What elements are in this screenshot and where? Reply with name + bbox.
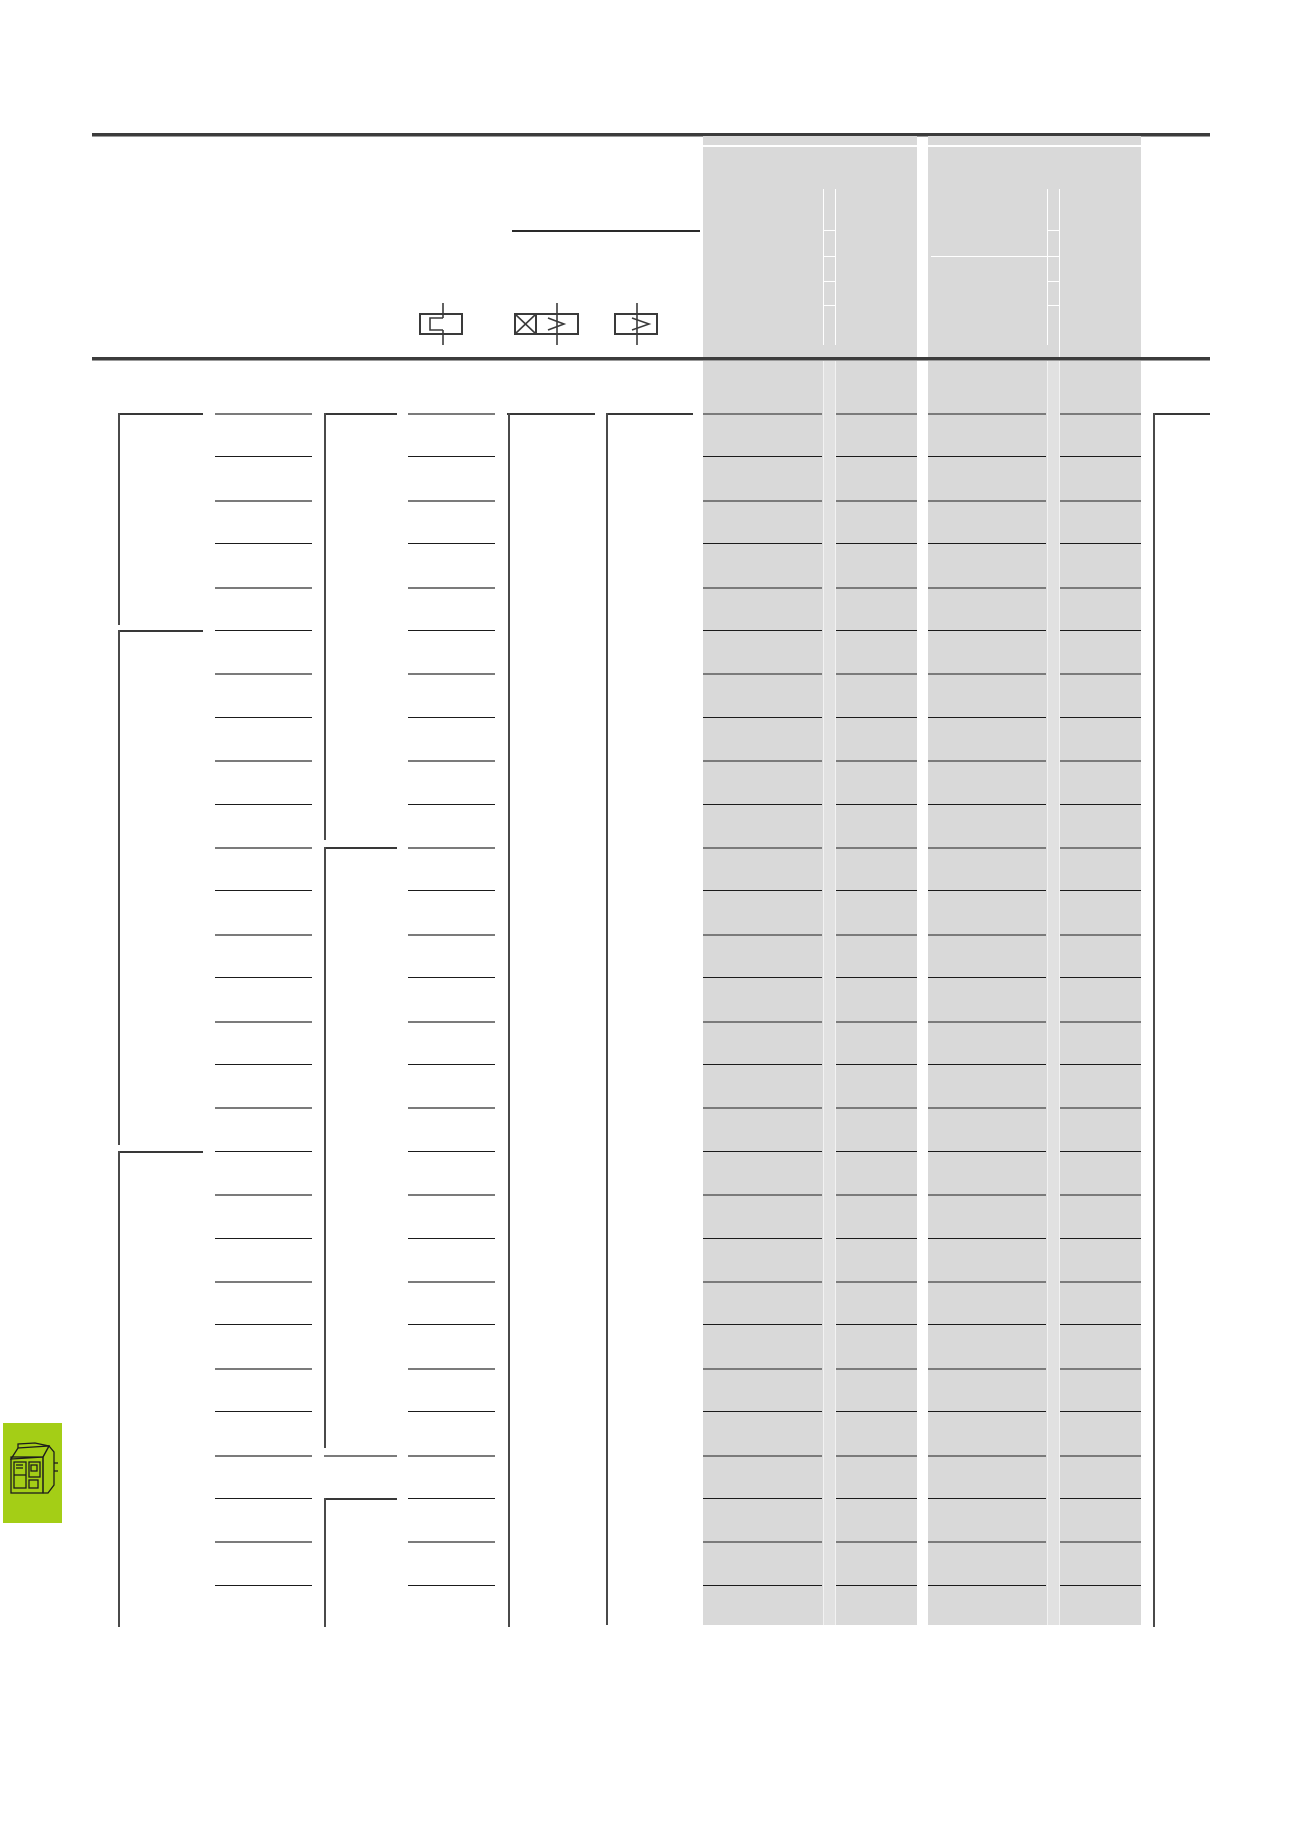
catalog-page: [0, 0, 1300, 1841]
body-band-1-divider-strip: [823, 361, 836, 1625]
header-subcolumn-divider: [1059, 189, 1060, 357]
row-line: [703, 500, 822, 502]
row-line: [703, 847, 822, 849]
header-underline: [512, 230, 700, 232]
row-line: [408, 760, 495, 762]
row-line: [1060, 413, 1141, 415]
column-rule: [118, 630, 120, 1145]
row-line: [928, 804, 1046, 805]
row-line: [1060, 1107, 1141, 1109]
row-line: [1060, 1541, 1141, 1543]
row-line: [836, 1541, 917, 1543]
header-tick: [1047, 230, 1060, 231]
row-line: [1060, 673, 1141, 675]
row-line: [408, 847, 495, 849]
row-line: [1060, 1498, 1141, 1499]
column-rule: [606, 413, 608, 1625]
row-line: [836, 500, 917, 502]
row-line: [703, 934, 822, 936]
header-gray-band-1: [703, 136, 917, 357]
row-line: [1060, 847, 1141, 849]
row-line: [836, 1064, 917, 1065]
row-line: [836, 1324, 917, 1325]
row-line: [408, 1455, 495, 1457]
column-rule: [1153, 413, 1155, 1627]
column-rule: [324, 413, 326, 840]
row-line: [408, 1107, 495, 1109]
row-line: [928, 847, 1046, 849]
cell-corner-line: [324, 1498, 397, 1500]
row-line: [408, 500, 495, 502]
row-line: [928, 934, 1046, 936]
row-line: [215, 934, 312, 936]
row-line: [408, 456, 495, 457]
row-line: [703, 413, 822, 415]
row-line: [703, 1238, 822, 1239]
row-line: [703, 456, 822, 457]
row-line: [928, 543, 1046, 544]
cell-corner-line: [118, 630, 203, 632]
header-tick: [823, 305, 836, 306]
row-line: [1060, 760, 1141, 762]
page-tab-badge: [3, 1423, 62, 1523]
header-tick: [823, 256, 836, 257]
row-line: [836, 890, 917, 891]
row-line: [703, 760, 822, 762]
row-line: [1060, 456, 1141, 457]
row-line: [408, 804, 495, 805]
row-line: [215, 1281, 312, 1283]
row-line: [408, 1498, 495, 1499]
column-rule: [508, 413, 510, 1627]
body-gray-band-1: [703, 361, 917, 1625]
header-tick: [1047, 281, 1060, 282]
row-line: [836, 630, 917, 631]
row-line: [408, 1238, 495, 1239]
row-line: [1060, 1021, 1141, 1023]
row-line: [215, 1064, 312, 1065]
row-line: [215, 977, 312, 978]
row-line: [836, 673, 917, 675]
row-line: [215, 1455, 312, 1457]
row-line: [928, 1194, 1046, 1196]
row-line: [928, 977, 1046, 978]
row-line: [928, 630, 1046, 631]
row-line: [928, 1107, 1046, 1109]
row-line: [215, 413, 312, 415]
row-line: [215, 456, 312, 457]
row-line: [836, 587, 917, 589]
circuit-breaker-product-icon: [3, 1423, 62, 1523]
row-line: [408, 1151, 495, 1152]
row-line: [928, 500, 1046, 502]
header-gray-band-2: [928, 136, 1141, 357]
row-line: [408, 1411, 495, 1412]
overcurrent-release-symbol-icon: [614, 303, 658, 345]
row-line: [928, 1411, 1046, 1412]
row-line: [215, 1541, 312, 1543]
row-line: [928, 1151, 1046, 1152]
row-line: [1060, 1281, 1141, 1283]
row-line: [836, 977, 917, 978]
row-line: [836, 847, 917, 849]
row-line: [408, 1585, 495, 1586]
row-line: [1060, 804, 1141, 805]
row-line: [703, 1368, 822, 1370]
cell-corner-line: [1153, 413, 1210, 415]
row-line: [1060, 934, 1141, 936]
row-line: [836, 1411, 917, 1412]
row-line: [324, 1455, 397, 1457]
row-line: [836, 1585, 917, 1586]
row-line: [215, 1411, 312, 1412]
header-tick: [823, 281, 836, 282]
row-line: [703, 673, 822, 675]
row-line: [215, 673, 312, 675]
cell-corner-line: [606, 413, 693, 415]
body-gray-band-2: [928, 361, 1141, 1625]
row-line: [215, 1194, 312, 1196]
row-line: [928, 1238, 1046, 1239]
header-tick: [823, 230, 836, 231]
row-line: [408, 1541, 495, 1543]
row-line: [928, 890, 1046, 891]
row-line: [1060, 500, 1141, 502]
row-line: [1060, 587, 1141, 589]
row-line: [836, 413, 917, 415]
row-line: [703, 1194, 822, 1196]
row-line: [703, 1281, 822, 1283]
row-line: [1060, 1064, 1141, 1065]
row-line: [215, 1151, 312, 1152]
switch-contact-symbol-icon: [419, 303, 463, 345]
row-line: [928, 587, 1046, 589]
row-line: [215, 1107, 312, 1109]
row-line: [703, 1021, 822, 1023]
row-line: [1060, 543, 1141, 544]
row-line: [215, 760, 312, 762]
breaker-release-overcurrent-symbol-icon: [514, 303, 579, 345]
row-line: [836, 1281, 917, 1283]
row-line: [408, 717, 495, 718]
cell-corner-line: [324, 847, 397, 849]
row-line: [928, 1541, 1046, 1543]
row-line: [215, 1585, 312, 1586]
row-line: [1060, 890, 1141, 891]
row-line: [836, 1021, 917, 1023]
row-line: [928, 1368, 1046, 1370]
row-line: [928, 1585, 1046, 1586]
row-line: [836, 456, 917, 457]
row-line: [836, 1107, 917, 1109]
row-line: [928, 1324, 1046, 1325]
row-line: [1060, 1194, 1141, 1196]
row-line: [928, 673, 1046, 675]
header-subcolumn-divider: [1047, 189, 1048, 345]
row-line: [703, 1541, 822, 1543]
column-rule: [118, 413, 120, 625]
row-line: [408, 1368, 495, 1370]
row-line: [408, 1194, 495, 1196]
row-line: [408, 1324, 495, 1325]
row-line: [703, 1585, 822, 1586]
row-line: [408, 890, 495, 891]
row-line: [215, 717, 312, 718]
row-line: [1060, 977, 1141, 978]
row-line: [928, 1498, 1046, 1499]
row-line: [703, 890, 822, 891]
header-tick: [1047, 305, 1060, 306]
row-line: [215, 1238, 312, 1239]
row-line: [408, 1064, 495, 1065]
row-line: [836, 717, 917, 718]
row-line: [1060, 1151, 1141, 1152]
row-line: [836, 1238, 917, 1239]
row-line: [1060, 1238, 1141, 1239]
row-line: [836, 1455, 917, 1457]
row-line: [836, 1368, 917, 1370]
row-line: [836, 1498, 917, 1499]
row-line: [408, 673, 495, 675]
row-line: [1060, 1455, 1141, 1457]
row-line: [836, 760, 917, 762]
row-line: [928, 760, 1046, 762]
row-line: [703, 804, 822, 805]
row-line: [703, 1151, 822, 1152]
row-line: [836, 804, 917, 805]
row-line: [1060, 1324, 1141, 1325]
row-line: [1060, 1368, 1141, 1370]
row-line: [408, 934, 495, 936]
row-line: [703, 543, 822, 544]
row-line: [836, 543, 917, 544]
header-subcolumn-divider: [835, 189, 836, 345]
row-line: [836, 1194, 917, 1196]
row-line: [408, 1021, 495, 1023]
row-line: [215, 1021, 312, 1023]
row-line: [703, 630, 822, 631]
row-line: [1060, 1411, 1141, 1412]
row-line: [408, 587, 495, 589]
row-line: [703, 977, 822, 978]
row-line: [215, 847, 312, 849]
row-line: [408, 630, 495, 631]
row-line: [1060, 717, 1141, 718]
cell-corner-line: [118, 413, 203, 415]
row-line: [928, 1455, 1046, 1457]
row-line: [836, 1151, 917, 1152]
row-line: [1060, 1585, 1141, 1586]
row-line: [215, 500, 312, 502]
cell-corner-line: [507, 413, 595, 415]
row-line: [215, 1498, 312, 1499]
row-line: [928, 1064, 1046, 1065]
cell-corner-line: [118, 1151, 203, 1153]
body-band-2-divider-strip: [1047, 361, 1060, 1625]
row-line: [703, 1411, 822, 1412]
row-line: [836, 934, 917, 936]
cell-corner-line: [324, 413, 397, 415]
row-line: [408, 977, 495, 978]
row-line: [703, 1498, 822, 1499]
row-line: [1060, 630, 1141, 631]
header-band-white-line: [928, 145, 1141, 147]
row-line: [928, 1281, 1046, 1283]
row-line: [215, 1368, 312, 1370]
row-line: [215, 543, 312, 544]
row-line: [703, 587, 822, 589]
header-subcolumn-divider: [823, 189, 824, 345]
row-line: [703, 717, 822, 718]
row-line: [215, 630, 312, 631]
row-line: [928, 413, 1046, 415]
row-line: [928, 456, 1046, 457]
column-rule: [324, 1498, 326, 1627]
row-line: [928, 1021, 1046, 1023]
header-band-white-line: [703, 145, 917, 147]
row-line: [928, 717, 1046, 718]
row-line: [215, 804, 312, 805]
row-line: [215, 587, 312, 589]
row-line: [703, 1455, 822, 1457]
row-line: [408, 1281, 495, 1283]
row-line: [408, 543, 495, 544]
row-line: [215, 890, 312, 891]
row-line: [215, 1324, 312, 1325]
header-tick: [1047, 256, 1060, 257]
row-line: [408, 413, 495, 415]
row-line: [703, 1064, 822, 1065]
column-rule: [118, 1151, 120, 1627]
header-cell-split-line: [931, 256, 1047, 257]
column-rule: [324, 847, 326, 1448]
row-line: [703, 1324, 822, 1325]
row-line: [703, 1107, 822, 1109]
